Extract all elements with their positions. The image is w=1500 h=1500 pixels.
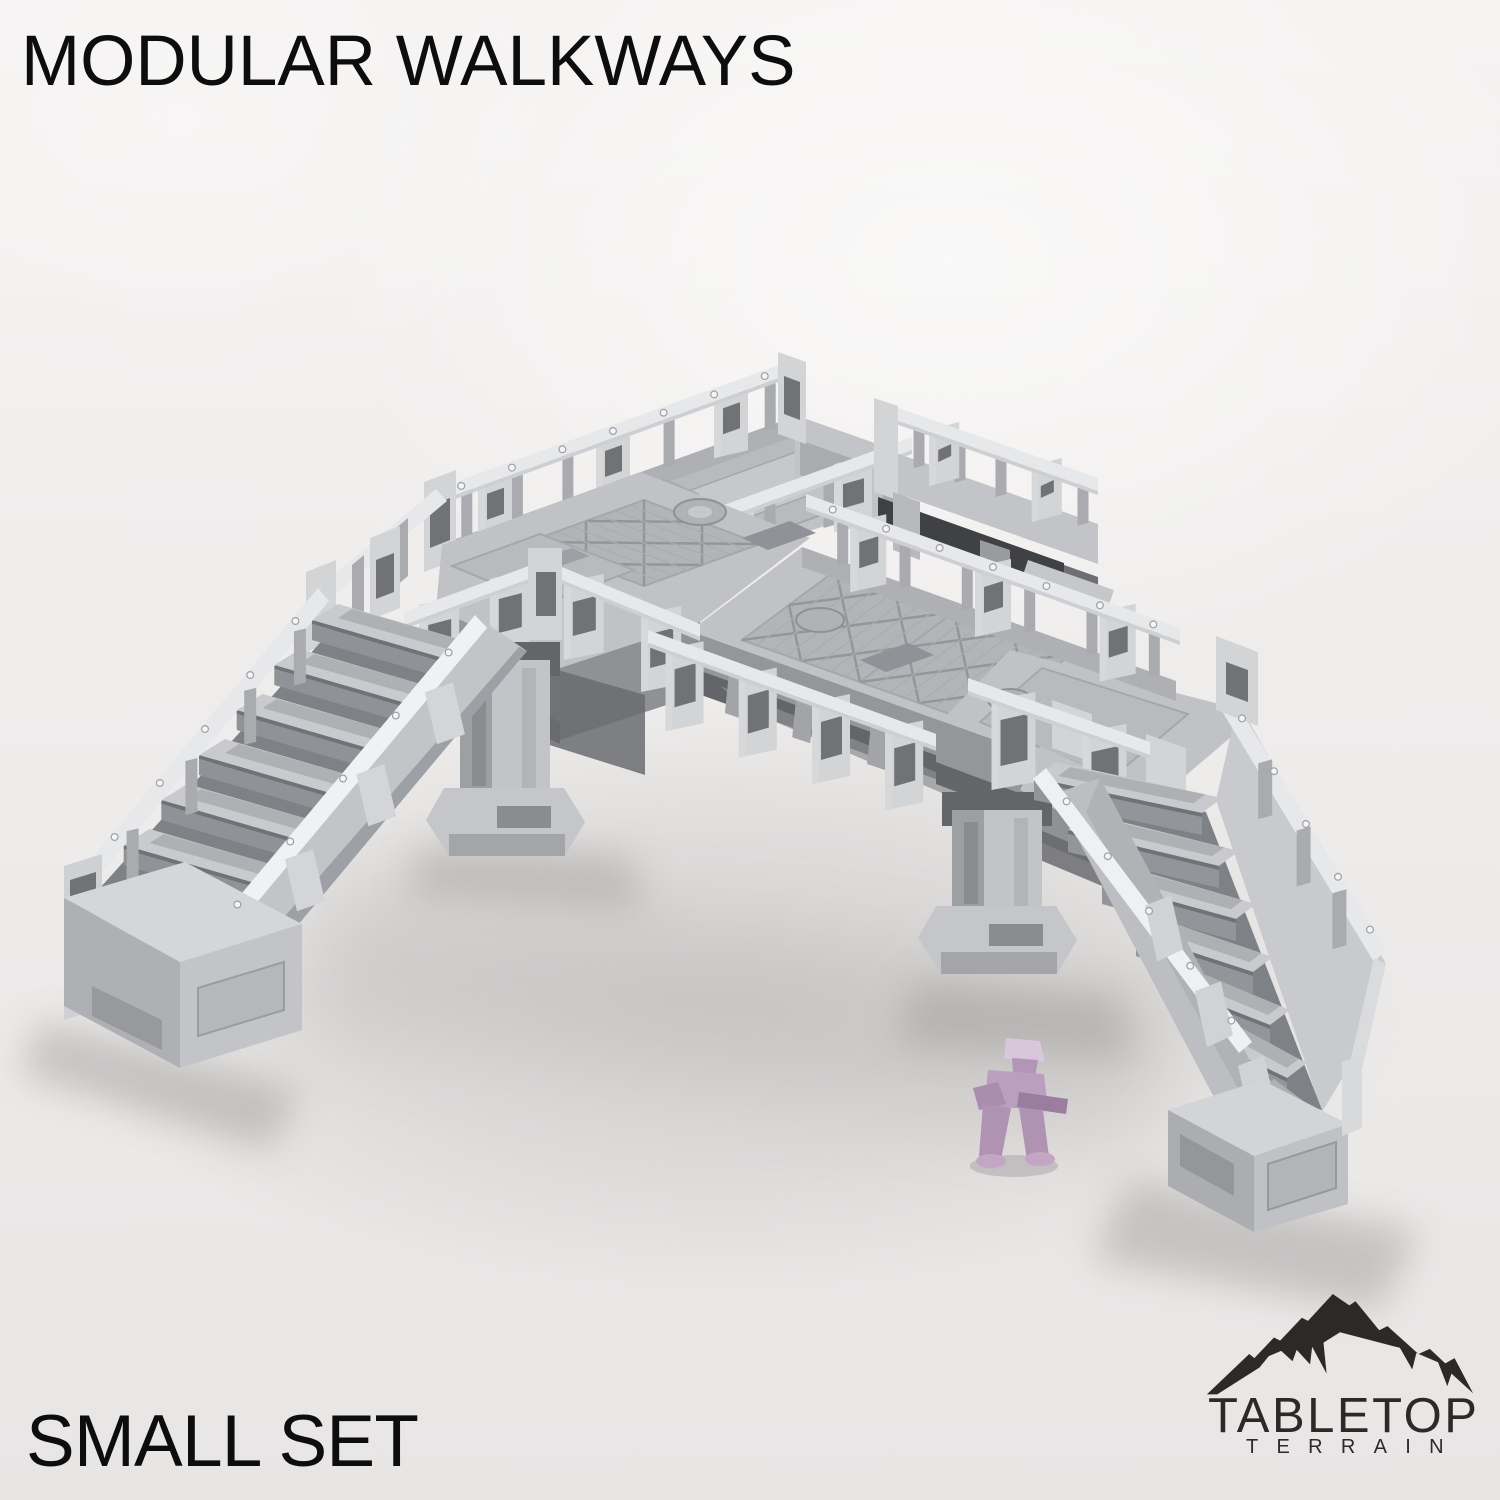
svg-text:MODULAR WALKWAYS: MODULAR WALKWAYS (21, 22, 796, 101)
svg-text:TABLETOP: TABLETOP (1208, 1389, 1479, 1443)
svg-text:TERRAIN: TERRAIN (1246, 1436, 1462, 1458)
svg-text:SMALL SET: SMALL SET (26, 1401, 418, 1482)
